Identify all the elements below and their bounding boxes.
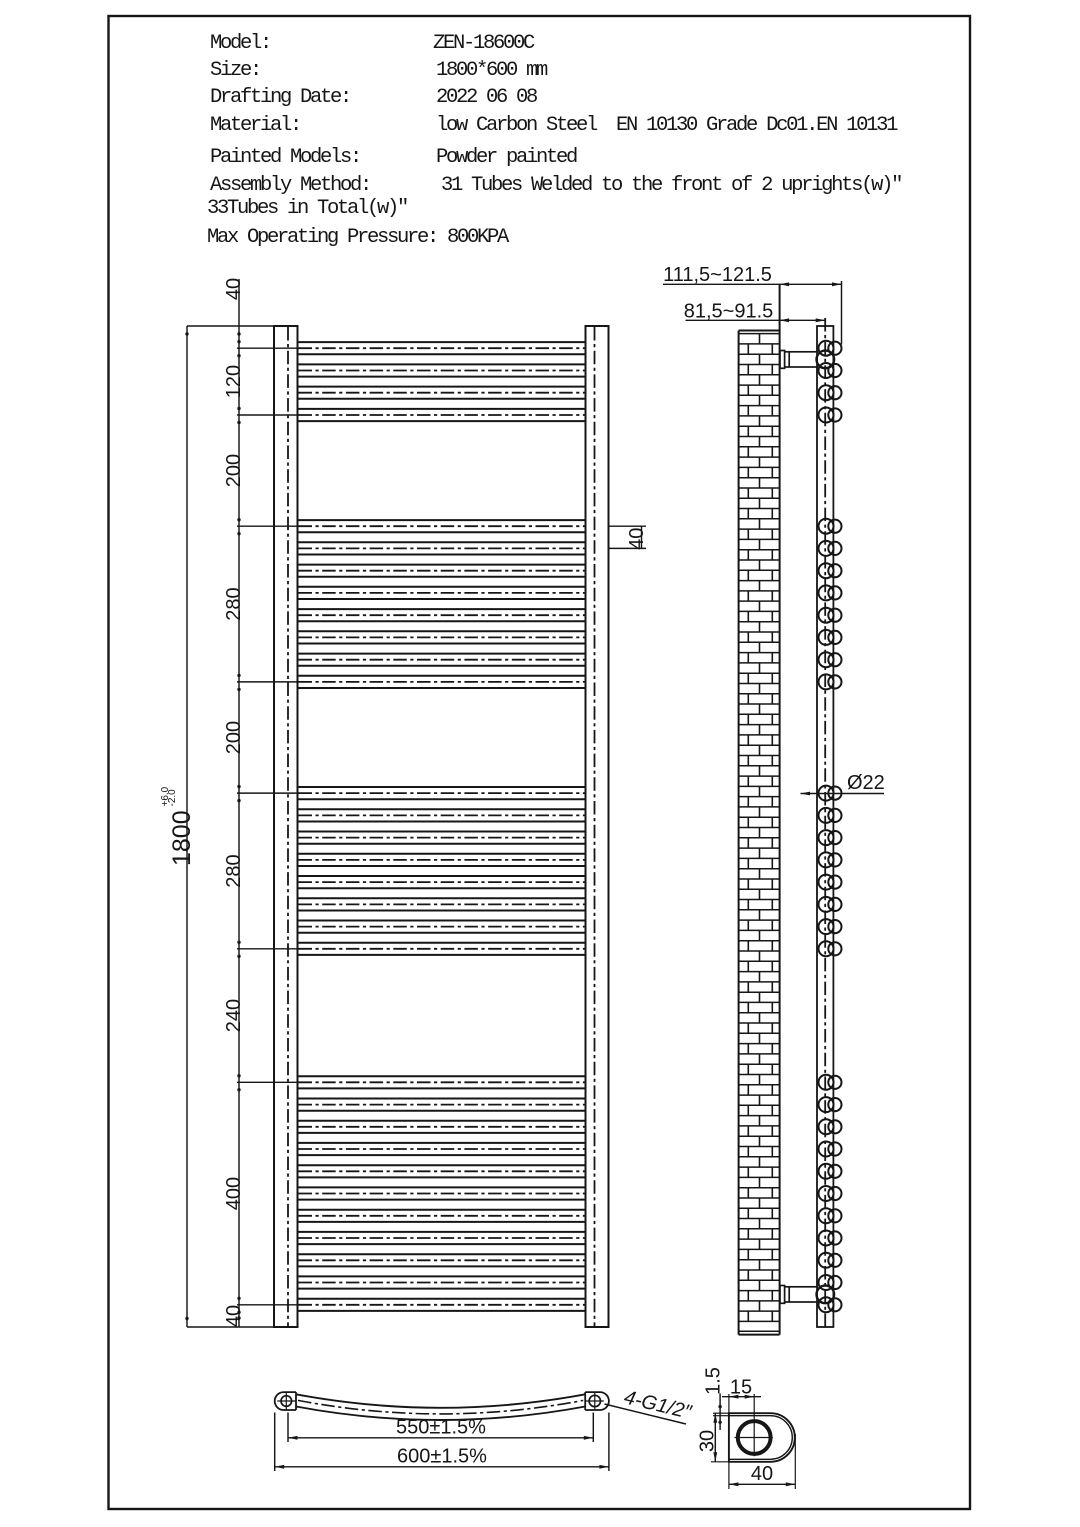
svg-text:Material:: Material: (210, 114, 300, 137)
svg-text:40: 40 (223, 1305, 245, 1327)
svg-text:Size:: Size: (210, 59, 260, 82)
svg-text:200: 200 (223, 454, 245, 487)
svg-text:Assembly Method:: Assembly Method: (210, 174, 370, 197)
svg-text:111,5~121.5: 111,5~121.5 (663, 264, 772, 286)
svg-text:30: 30 (697, 1430, 719, 1452)
svg-text:240: 240 (223, 999, 245, 1032)
svg-text:4-G1/2″: 4-G1/2″ (622, 1386, 694, 1424)
svg-text:33Tubes in Total(w)″: 33Tubes in Total(w)″ (207, 197, 407, 220)
svg-text:1.5: 1.5 (703, 1367, 725, 1395)
svg-text:15: 15 (730, 1377, 752, 1399)
svg-text:Drafting Date:: Drafting Date: (210, 86, 350, 109)
svg-text:31 Tubes Welded to the front o: 31 Tubes Welded to the front of 2 uprigh… (441, 174, 901, 197)
svg-text:-2.0: -2.0 (167, 789, 178, 807)
svg-text:200: 200 (223, 721, 245, 754)
svg-text:Ø22: Ø22 (847, 772, 885, 794)
svg-text:81,5~91.5: 81,5~91.5 (684, 301, 774, 323)
svg-text:Powder painted: Powder painted (436, 146, 577, 169)
svg-text:40: 40 (223, 278, 245, 300)
svg-text:Max Operating Pressure: 800KPA: Max Operating Pressure: 800KPA (207, 226, 510, 249)
svg-text:120: 120 (223, 365, 245, 398)
svg-text:280: 280 (223, 854, 245, 887)
svg-text:2022 06 08: 2022 06 08 (436, 86, 537, 109)
svg-text:600±1.5%: 600±1.5% (397, 1446, 487, 1468)
svg-text:400: 400 (223, 1177, 245, 1210)
svg-text:1800: 1800 (168, 810, 196, 866)
svg-text:ZEN-18600C: ZEN-18600C (433, 32, 535, 55)
svg-text:1800*600 mm: 1800*600 mm (436, 59, 548, 82)
svg-text:40: 40 (626, 528, 648, 550)
svg-text:280: 280 (223, 587, 245, 620)
svg-text:Painted Models:: Painted Models: (210, 146, 360, 169)
svg-text:Model:: Model: (210, 32, 270, 55)
svg-text:low Carbon Steel EN 10130 Gra: low Carbon Steel EN 10130 Grade Dc01.EN … (436, 114, 898, 137)
svg-text:550±1.5%: 550±1.5% (396, 1417, 486, 1439)
svg-text:40: 40 (751, 1463, 773, 1485)
